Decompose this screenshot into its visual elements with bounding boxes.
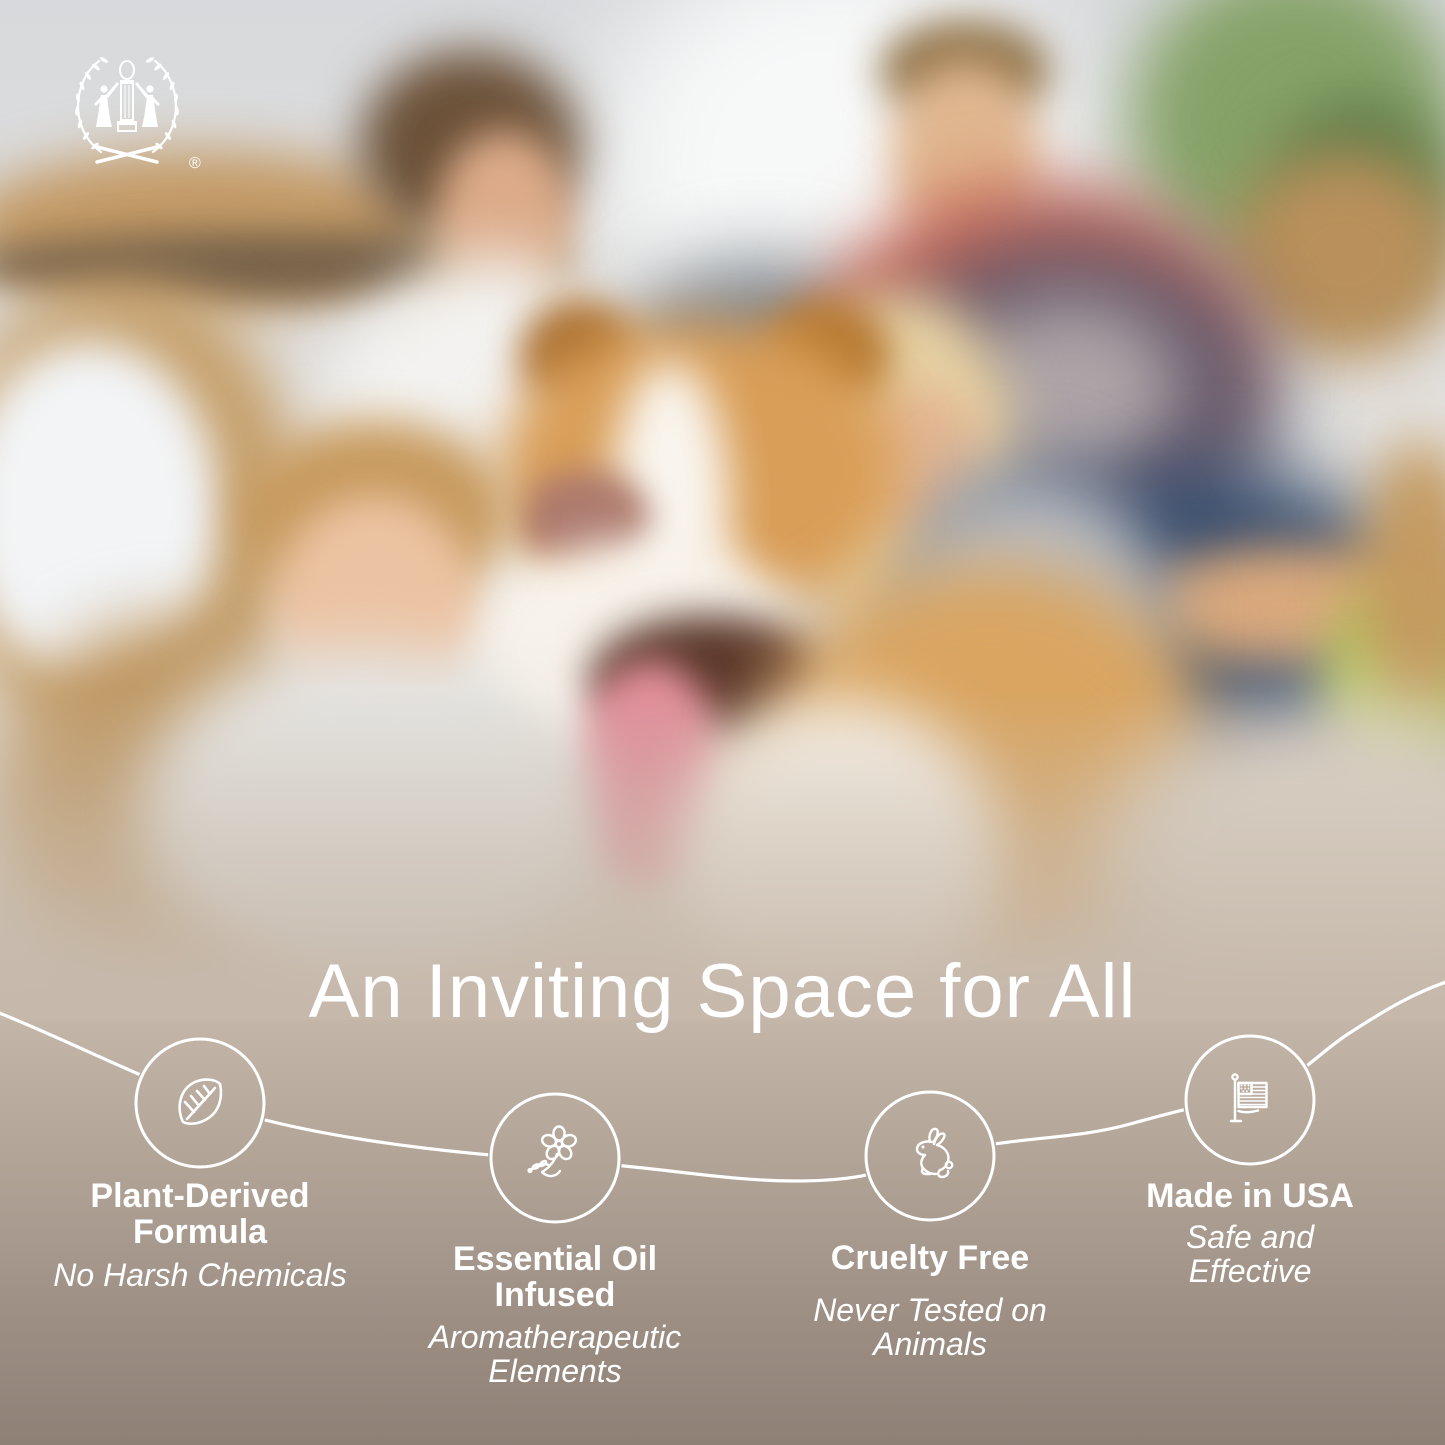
feature-title: Made in USA	[1110, 1178, 1390, 1214]
rabbit-icon	[860, 1086, 1000, 1226]
usa-flag-icon	[1180, 1030, 1320, 1170]
brand-laurel-wreath-logo	[54, 40, 200, 180]
photo-wood-shelf	[1230, 150, 1445, 360]
feature-title: Essential Oil Infused	[415, 1241, 695, 1313]
feature-subtitle: Never Tested on Animals	[810, 1293, 1050, 1361]
product-marketing-image: ® An Inviting Space for All Plant-Derive…	[0, 0, 1445, 1445]
leaf-icon	[130, 1033, 270, 1173]
essential-oil-flower-icon	[485, 1088, 625, 1228]
registered-trademark-symbol: ®	[189, 155, 201, 173]
feature-title: Plant-Derived Formula	[60, 1178, 340, 1250]
feature-subtitle: No Harsh Chemicals	[40, 1258, 360, 1292]
feature-title: Cruelty Free	[790, 1240, 1070, 1276]
family-photo	[0, 0, 1445, 1020]
feature-subtitle: Aromatherapeutic Elements	[405, 1320, 705, 1388]
logo-column	[117, 61, 137, 131]
feature-subtitle: Safe and Effective	[1155, 1220, 1345, 1288]
headline: An Inviting Space for All	[0, 948, 1445, 1035]
